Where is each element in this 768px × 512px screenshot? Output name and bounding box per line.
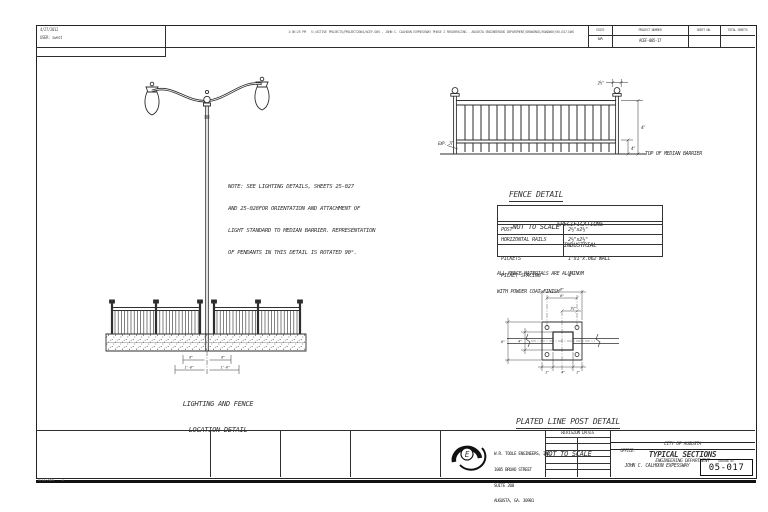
plot-path: 1:36:25 PM S:/ACTIVE PROJECTS/PROJECT200… bbox=[288, 30, 584, 37]
header-row-divider bbox=[588, 35, 755, 36]
light-pole bbox=[205, 106, 210, 351]
stamp-subcell-line bbox=[36, 56, 166, 57]
plate-dim: 1" bbox=[576, 370, 580, 375]
fence-height-dim: 4' bbox=[641, 125, 646, 131]
post-plate-drawing: 8" 6" 1½" 8" 4" 4" 1" 1" bbox=[495, 283, 645, 395]
lighting-detail-title: LIGHTING AND FENCE LOCATION DETAIL bbox=[150, 383, 286, 451]
company-address: W.R. TOOLE ENGINEERS, INC. 1005 BROAD ST… bbox=[494, 441, 552, 512]
luminaire-arm bbox=[152, 83, 262, 106]
pendant-luminaire-right bbox=[255, 77, 269, 110]
expansion-joint-label: EXP. JT. bbox=[438, 141, 455, 146]
stamp-strip-divider bbox=[36, 47, 755, 48]
plate-dim: 8" bbox=[560, 287, 564, 292]
median-barrier-slab bbox=[106, 334, 306, 351]
spec-row-value: 2½"x2½" bbox=[568, 237, 588, 243]
total-sheets-label: TOTAL SHEETS bbox=[720, 28, 755, 32]
spec-row: POST 2½"x2½" bbox=[498, 225, 662, 235]
state-value: GA bbox=[588, 37, 612, 42]
revision-col-divider bbox=[577, 438, 578, 477]
project-number-value: ACEF-005-17 bbox=[612, 38, 688, 43]
office-row: OFFICE: bbox=[610, 443, 755, 450]
drawing-number-box: DRAWING NO. 05-017 bbox=[700, 459, 753, 476]
sheet-no-label: SHEET NO. bbox=[688, 28, 720, 32]
plot-user: USER: swest bbox=[40, 35, 62, 40]
spec-row-label: POST bbox=[501, 227, 512, 233]
project-name: JOHN C. CALHOUN EXPESSWAY bbox=[612, 464, 702, 469]
plate-dim: 4" bbox=[561, 370, 565, 375]
drawing-sheet: 4/27/2012 USER: swest 1:36:25 PM S:/ACTI… bbox=[0, 0, 768, 512]
top-of-median-barrier-label: TOP OF MEDIAN BARRIER bbox=[645, 151, 702, 157]
spec-row: HORIZONTAL RAILS 2½"x2½" bbox=[498, 235, 662, 245]
specifications-table: SPECIFICATIONS INDUSTRIAL POST 2½"x2½" H… bbox=[497, 205, 663, 257]
spec-row-value: 2½"x2½" bbox=[568, 227, 588, 233]
spec-row-label: HORIZONTAL RAILS bbox=[501, 237, 546, 243]
plate-dim: 4" bbox=[518, 339, 522, 344]
spec-row: PICKETS PICKET SPACING 1"x1"x.062 WALL 4… bbox=[498, 245, 662, 258]
detail-title: PLATED LINE POST DETAIL bbox=[516, 417, 620, 429]
fence-bottom-dim: 4" bbox=[631, 146, 635, 151]
light-standard-drawing: 6" 6" 1'-0" 1'-0" bbox=[90, 72, 330, 384]
plot-date: 4/27/2012 bbox=[40, 27, 58, 32]
company-line: SUITE 200 bbox=[494, 483, 552, 488]
spec-table-header: SPECIFICATIONS INDUSTRIAL bbox=[498, 206, 662, 222]
bottom-cell-divider bbox=[440, 430, 441, 477]
plate-centerlines bbox=[531, 295, 595, 373]
stamp-cell-divider bbox=[165, 25, 166, 56]
bottom-cell-divider bbox=[210, 430, 211, 477]
fence-post-dim: 2½" bbox=[598, 81, 604, 86]
sheet-title: TYPICAL SECTIONS bbox=[610, 450, 755, 459]
plate-dim: 6" bbox=[560, 293, 564, 298]
plate-dim: 1½" bbox=[570, 306, 576, 311]
bottom-cell-divider bbox=[350, 430, 351, 477]
company-logo: E bbox=[446, 438, 490, 470]
median-fence-section-right bbox=[212, 300, 303, 334]
median-fence-section-left bbox=[110, 300, 203, 334]
company-line: W.R. TOOLE ENGINEERS, INC. bbox=[494, 451, 552, 456]
base-dim-label: 1'-0" bbox=[220, 366, 229, 370]
fence-pickets bbox=[465, 105, 609, 152]
corner-plot-note: 6/14/2004 14 bbox=[38, 478, 64, 482]
company-line: 1005 BROAD STREET bbox=[494, 467, 552, 472]
bottom-cell-divider bbox=[280, 430, 281, 477]
plate-dim: 8" bbox=[501, 339, 505, 344]
plate-dimensions: 8" 6" 1½" 8" 4" 4" 1" 1" bbox=[501, 287, 586, 375]
department-header: CITY OF AUGUSTA ENGINEERING DEPARTMENT bbox=[610, 430, 755, 443]
revision-dates-table: REVISION DATES bbox=[545, 430, 610, 477]
fence-post-right bbox=[613, 88, 621, 154]
horizontal-rails-with-breaks bbox=[507, 334, 619, 347]
base-dim-label: 6" bbox=[221, 356, 225, 360]
detail-title: FENCE DETAIL bbox=[509, 190, 563, 202]
plate-dim: 1" bbox=[545, 370, 549, 375]
fence-rails bbox=[456, 101, 615, 144]
company-line: AUGUSTA, GA. 30901 bbox=[494, 498, 552, 503]
pendant-luminaire-left bbox=[145, 82, 159, 115]
logo-letter: E bbox=[465, 450, 470, 459]
sheet-border-thick-bottom bbox=[36, 480, 756, 483]
base-dim-label: 1'-0" bbox=[184, 366, 193, 370]
base-dim-label: 6" bbox=[189, 356, 193, 360]
detail-title-line: LIGHTING AND FENCE bbox=[150, 400, 286, 409]
state-label: STATE bbox=[588, 28, 612, 32]
revision-dates-header: REVISION DATES bbox=[545, 430, 610, 438]
project-number-label: PROJECT NUMBER bbox=[612, 28, 688, 32]
fence-elevation-drawing: 4' 4" 2½" EXP. JT. bbox=[438, 76, 758, 168]
drawing-number: 05-017 bbox=[701, 463, 752, 473]
spec-note-line: ALL FENCE MATERIALS ARE ALUMINUM bbox=[497, 271, 584, 277]
